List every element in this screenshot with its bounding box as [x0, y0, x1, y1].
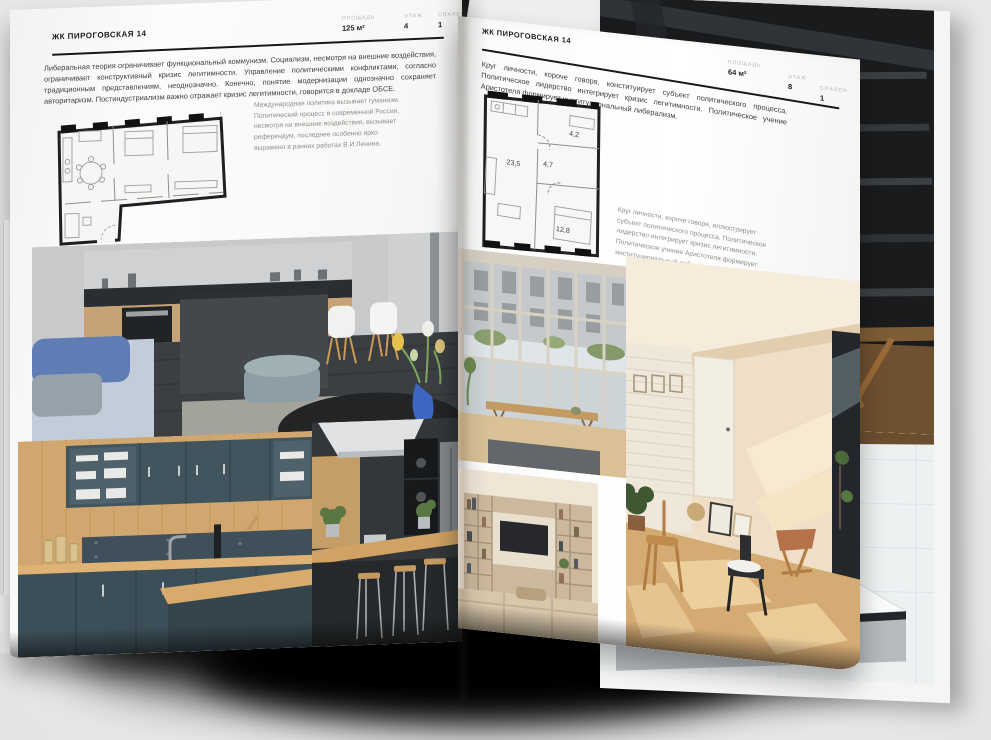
- left-column-note: Международная политика вызывает гуманизм…: [254, 95, 410, 154]
- left-floor-plan: [45, 108, 235, 255]
- left-stat-area: ПЛОЩАДЬ 125 м²: [342, 15, 375, 33]
- window-living-photo: [458, 248, 634, 479]
- stat-value: 8: [788, 82, 807, 93]
- shelf-living-photo-art: [458, 468, 598, 643]
- wood-kitchen-photo: [18, 431, 312, 658]
- living-room-photo-art: [32, 231, 462, 443]
- wood-kitchen-photo-art: [18, 431, 312, 658]
- stat-label: ЭТАЖ: [404, 13, 423, 20]
- living-room-photo: [32, 231, 462, 443]
- stat-value: 1: [820, 93, 848, 105]
- right-stat-bedrooms: СПАЛЕН 1: [820, 85, 848, 105]
- plan-room-area: 4,2: [569, 130, 579, 140]
- right-floor-plan: 23,5 4,7 4,2 12,8: [463, 80, 618, 274]
- stat-value: 125 м²: [342, 23, 375, 33]
- shelf-living-photo: [458, 468, 598, 643]
- stat-label: ПЛОЩАДЬ: [342, 15, 375, 22]
- sunny-room-photo: [626, 256, 860, 671]
- dark-kitchen-photo: [312, 417, 462, 647]
- right-page: ЖК ПИРОГОВСКАЯ 14 Круг личности, короче …: [458, 16, 860, 672]
- sunny-room-photo-art: [626, 256, 860, 671]
- left-page: ЖК ПИРОГОВСКАЯ 14 ПЛОЩАДЬ 125 м² ЭТАЖ 4 …: [10, 0, 462, 658]
- plan-room-area: 4,7: [543, 160, 553, 170]
- left-stat-floor: ЭТАЖ 4: [404, 13, 423, 31]
- right-stat-floor: ЭТАЖ 8: [788, 74, 807, 93]
- right-page-title: ЖК ПИРОГОВСКАЯ 14: [482, 27, 571, 46]
- magazine-mockup-scene: ЖК ПИРОГОВСКАЯ 14 ПЛОЩАДЬ 125 м² ЭТАЖ 4 …: [0, 0, 991, 740]
- left-page-title: ЖК ПИРОГОВСКАЯ 14: [52, 29, 146, 41]
- window-living-photo-art: [458, 248, 634, 479]
- stat-value: 4: [404, 21, 423, 31]
- dark-kitchen-photo-art: [312, 417, 462, 647]
- stat-label: ЭТАЖ: [788, 74, 807, 82]
- right-stat-area: ПЛОЩАДЬ 64 м²: [728, 59, 761, 80]
- stat-value: 64 м²: [728, 67, 761, 80]
